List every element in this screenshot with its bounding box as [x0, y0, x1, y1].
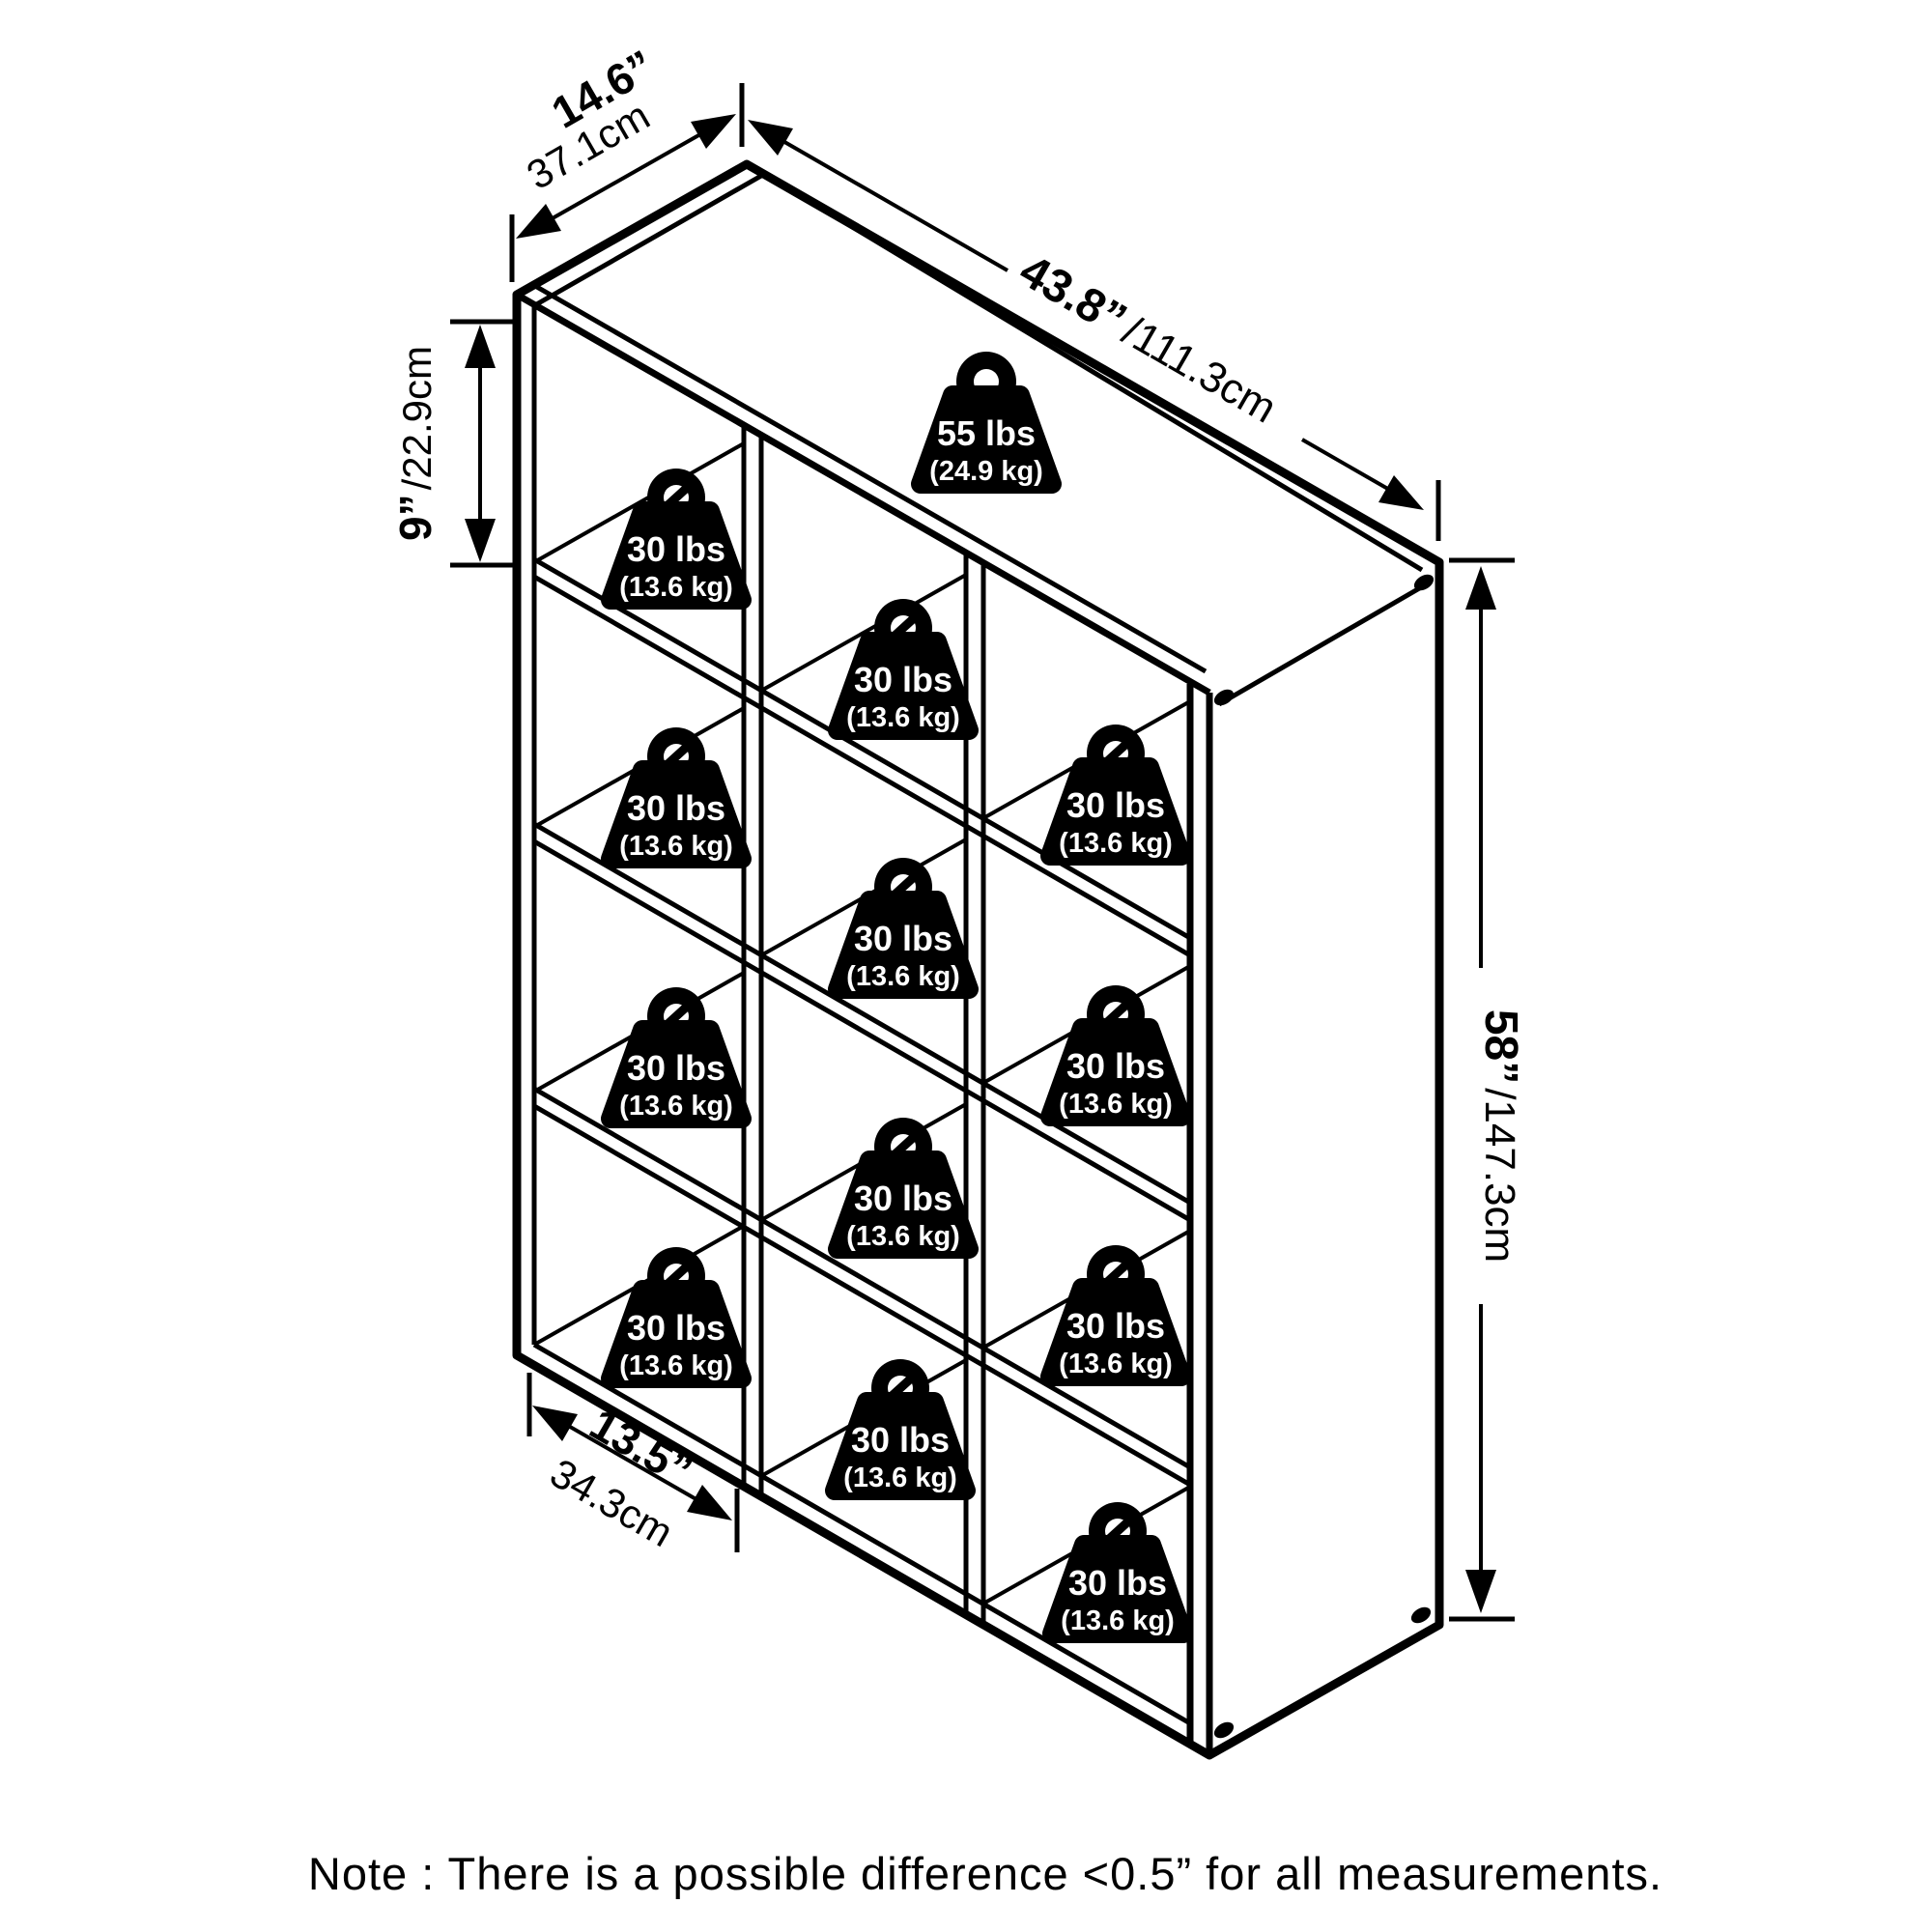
height-cm-label: /147.3cm: [1476, 1088, 1523, 1263]
weight-kg-label: (13.6 kg): [619, 1350, 733, 1381]
weight-lbs-label: 30 lbs: [627, 788, 725, 828]
weight-kg-label: (24.9 kg): [929, 456, 1043, 487]
weight-kg-label: (13.6 kg): [1059, 828, 1173, 859]
height-inches-label: 58”: [1475, 1009, 1526, 1084]
weight-lbs-label: 30 lbs: [1068, 1563, 1167, 1603]
weight-lbs-label: 55 lbs: [937, 413, 1036, 453]
weight-kg-label: (13.6 kg): [1061, 1605, 1175, 1636]
weight-lbs-label: 30 lbs: [1066, 1306, 1165, 1346]
weight-lbs-label: 30 lbs: [851, 1420, 950, 1460]
weight-lbs-label: 30 lbs: [627, 529, 725, 569]
dimension-height: 58”/147.3cm: [1449, 560, 1526, 1619]
weight-lbs-label: 30 lbs: [1066, 1046, 1165, 1086]
weight-kg-label: (13.6 kg): [619, 831, 733, 862]
shelf-dimension-drawing: 14.6” 37.1cm 43.8”/111.3cm 9”/22.9cm 58”…: [0, 0, 1932, 1932]
weight-lbs-label: 30 lbs: [854, 660, 952, 699]
dimension-cubby-height: 9”/22.9cm: [390, 322, 514, 565]
cubby-height-inches-label: 9”: [390, 494, 440, 541]
weight-kg-label: (13.6 kg): [1059, 1349, 1173, 1379]
weight-kg-label: (13.6 kg): [846, 702, 960, 733]
weight-kg-label: (13.6 kg): [843, 1463, 957, 1493]
weight-lbs-label: 30 lbs: [627, 1308, 725, 1348]
weight-lbs-label: 30 lbs: [627, 1048, 725, 1088]
weight-kg-label: (13.6 kg): [846, 1221, 960, 1252]
weight-lbs-label: 30 lbs: [854, 919, 952, 958]
weight-kg-label: (13.6 kg): [619, 1091, 733, 1122]
cubby-height-label: 9”/22.9cm: [390, 346, 440, 541]
weight-kg-label: (13.6 kg): [619, 572, 733, 603]
weight-kg-label: (13.6 kg): [846, 961, 960, 992]
weight-lbs-label: 30 lbs: [854, 1179, 952, 1218]
dimension-diagram: 14.6” 37.1cm 43.8”/111.3cm 9”/22.9cm 58”…: [0, 0, 1932, 1932]
weight-kg-label: (13.6 kg): [1059, 1089, 1173, 1120]
height-label: 58”/147.3cm: [1475, 1009, 1526, 1263]
weight-lbs-label: 30 lbs: [1066, 785, 1165, 825]
measurement-note: Note : There is a possible difference <0…: [308, 1848, 1662, 1899]
cubby-height-cm-label: /22.9cm: [394, 346, 440, 490]
